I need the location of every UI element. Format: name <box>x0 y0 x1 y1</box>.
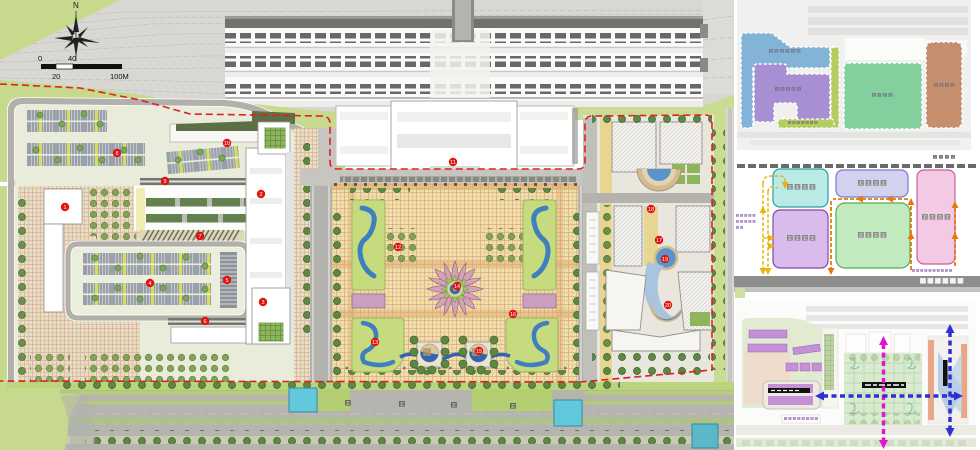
svg-text:18: 18 <box>648 207 654 213</box>
svg-text:20: 20 <box>665 303 671 309</box>
svg-text:4: 4 <box>148 281 151 287</box>
svg-text:N: N <box>73 1 79 10</box>
svg-text:11: 11 <box>450 160 456 166</box>
svg-text:3: 3 <box>261 300 264 306</box>
svg-text:14: 14 <box>454 284 460 290</box>
svg-text:16: 16 <box>510 312 516 318</box>
svg-text:6: 6 <box>203 319 206 325</box>
svg-text:20: 20 <box>52 72 60 81</box>
svg-text:12: 12 <box>395 245 401 251</box>
svg-text:13: 13 <box>372 340 378 346</box>
svg-text:19: 19 <box>662 257 668 263</box>
svg-text:100M: 100M <box>110 72 129 81</box>
svg-text:8: 8 <box>115 151 118 157</box>
svg-text:0: 0 <box>38 54 42 63</box>
svg-text:15: 15 <box>476 349 482 355</box>
svg-text:9: 9 <box>163 179 166 185</box>
svg-text:5: 5 <box>225 278 228 284</box>
svg-text:1: 1 <box>63 205 66 211</box>
svg-text:17: 17 <box>656 238 662 244</box>
svg-text:40: 40 <box>68 54 76 63</box>
svg-text:7: 7 <box>198 234 201 240</box>
svg-text:10: 10 <box>224 141 230 147</box>
svg-text:2: 2 <box>259 192 262 198</box>
